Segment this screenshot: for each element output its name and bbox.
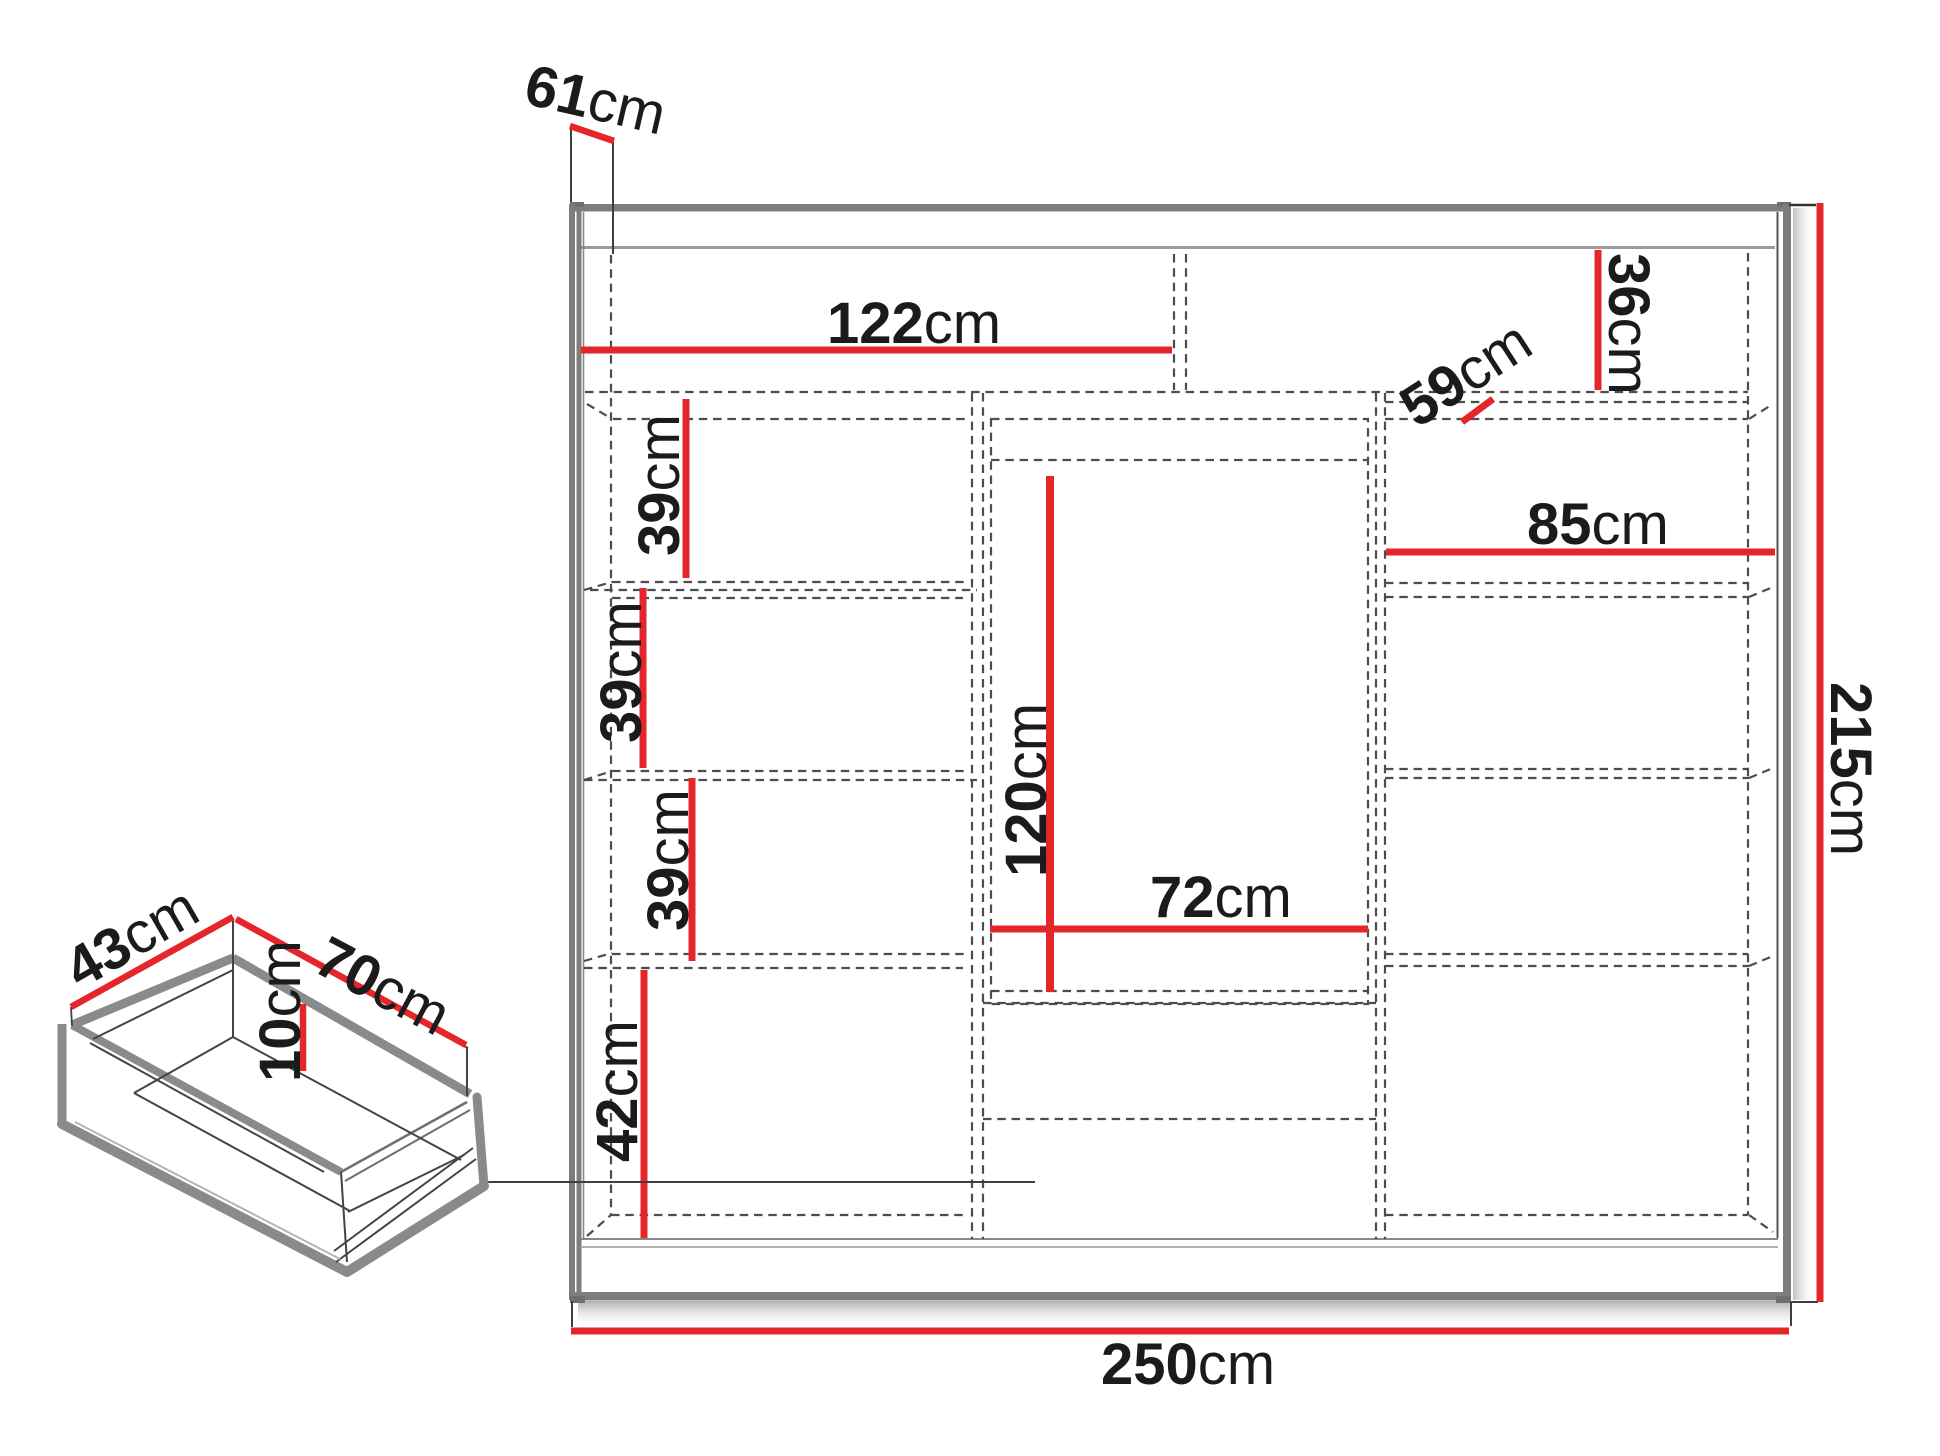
svg-text:36cm: 36cm [1596, 253, 1661, 395]
svg-text:42cm: 42cm [585, 1020, 650, 1162]
svg-text:10cm: 10cm [248, 940, 313, 1082]
svg-text:39cm: 39cm [589, 601, 654, 743]
svg-text:250cm: 250cm [1101, 1332, 1275, 1397]
svg-text:122cm: 122cm [827, 291, 1001, 356]
svg-text:39cm: 39cm [636, 789, 701, 931]
svg-text:85cm: 85cm [1527, 492, 1669, 557]
svg-text:120cm: 120cm [994, 703, 1059, 877]
svg-text:215cm: 215cm [1818, 682, 1883, 856]
svg-text:39cm: 39cm [627, 414, 692, 556]
svg-text:72cm: 72cm [1150, 865, 1292, 930]
